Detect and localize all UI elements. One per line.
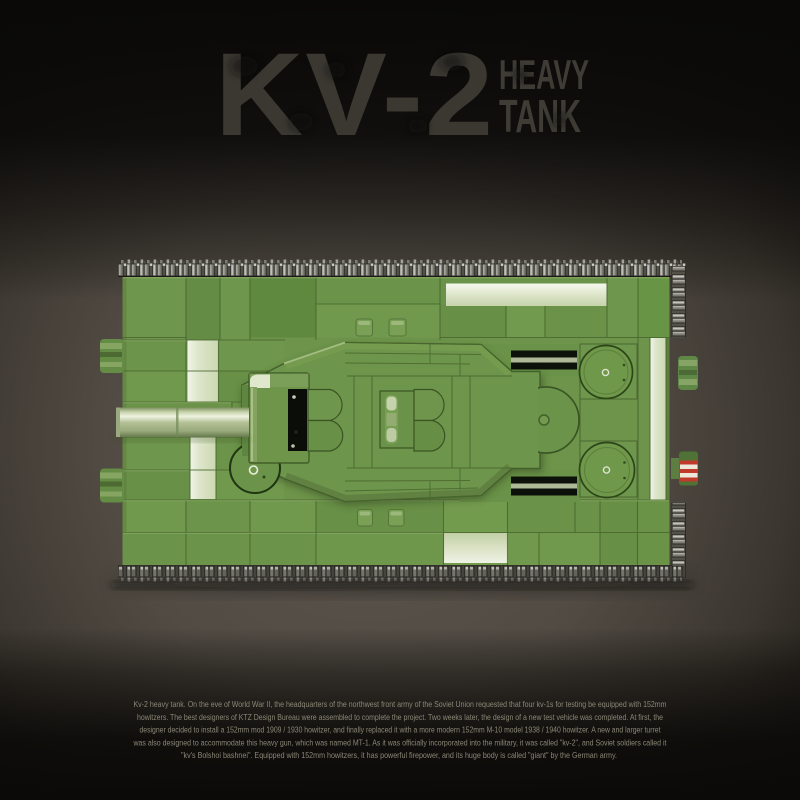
svg-text:was also designed to accommoda: was also designed to accommodate this he… <box>133 737 667 747</box>
svg-text:"kv's Bolshoi bashnei". Equipp: "kv's Bolshoi bashnei". Equipped with 15… <box>181 750 617 760</box>
svg-text:TANK: TANK <box>499 90 581 142</box>
svg-text:Kv-2 heavy tank. On the eve of: Kv-2 heavy tank. On the eve of World War… <box>134 699 667 709</box>
svg-text:KV-2: KV-2 <box>215 29 495 161</box>
svg-text:designer decided to install a: designer decided to install a 152mm mod … <box>140 725 661 735</box>
svg-text:howitzers. The best designers: howitzers. The best designers of KTZ Des… <box>137 712 663 722</box>
